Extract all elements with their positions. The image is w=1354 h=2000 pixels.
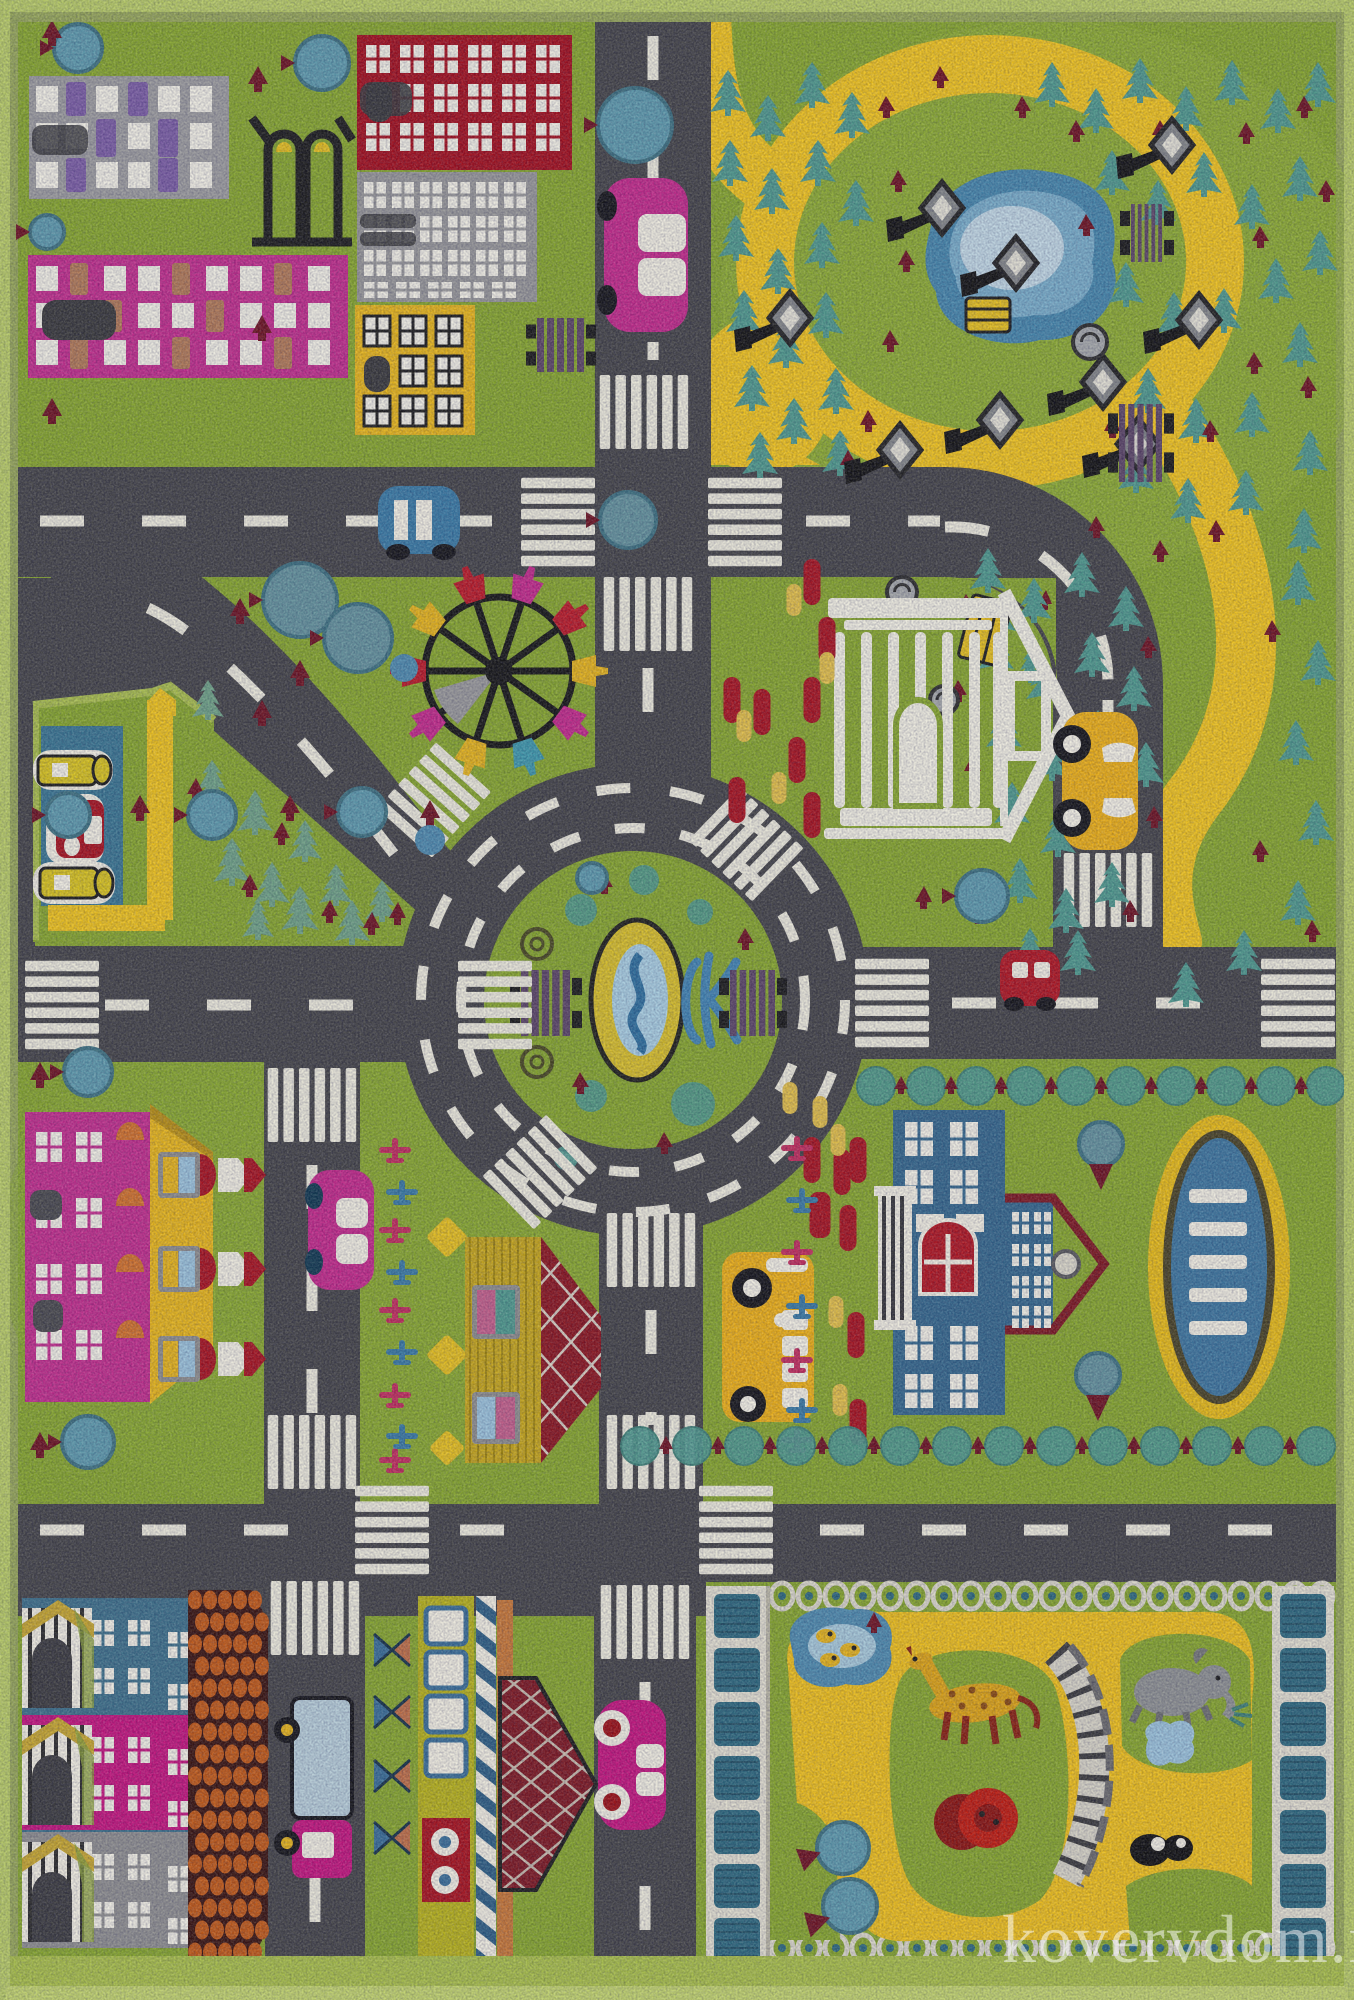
svg-text:kovervdom.ru: kovervdom.ru <box>1002 1901 1354 1977</box>
